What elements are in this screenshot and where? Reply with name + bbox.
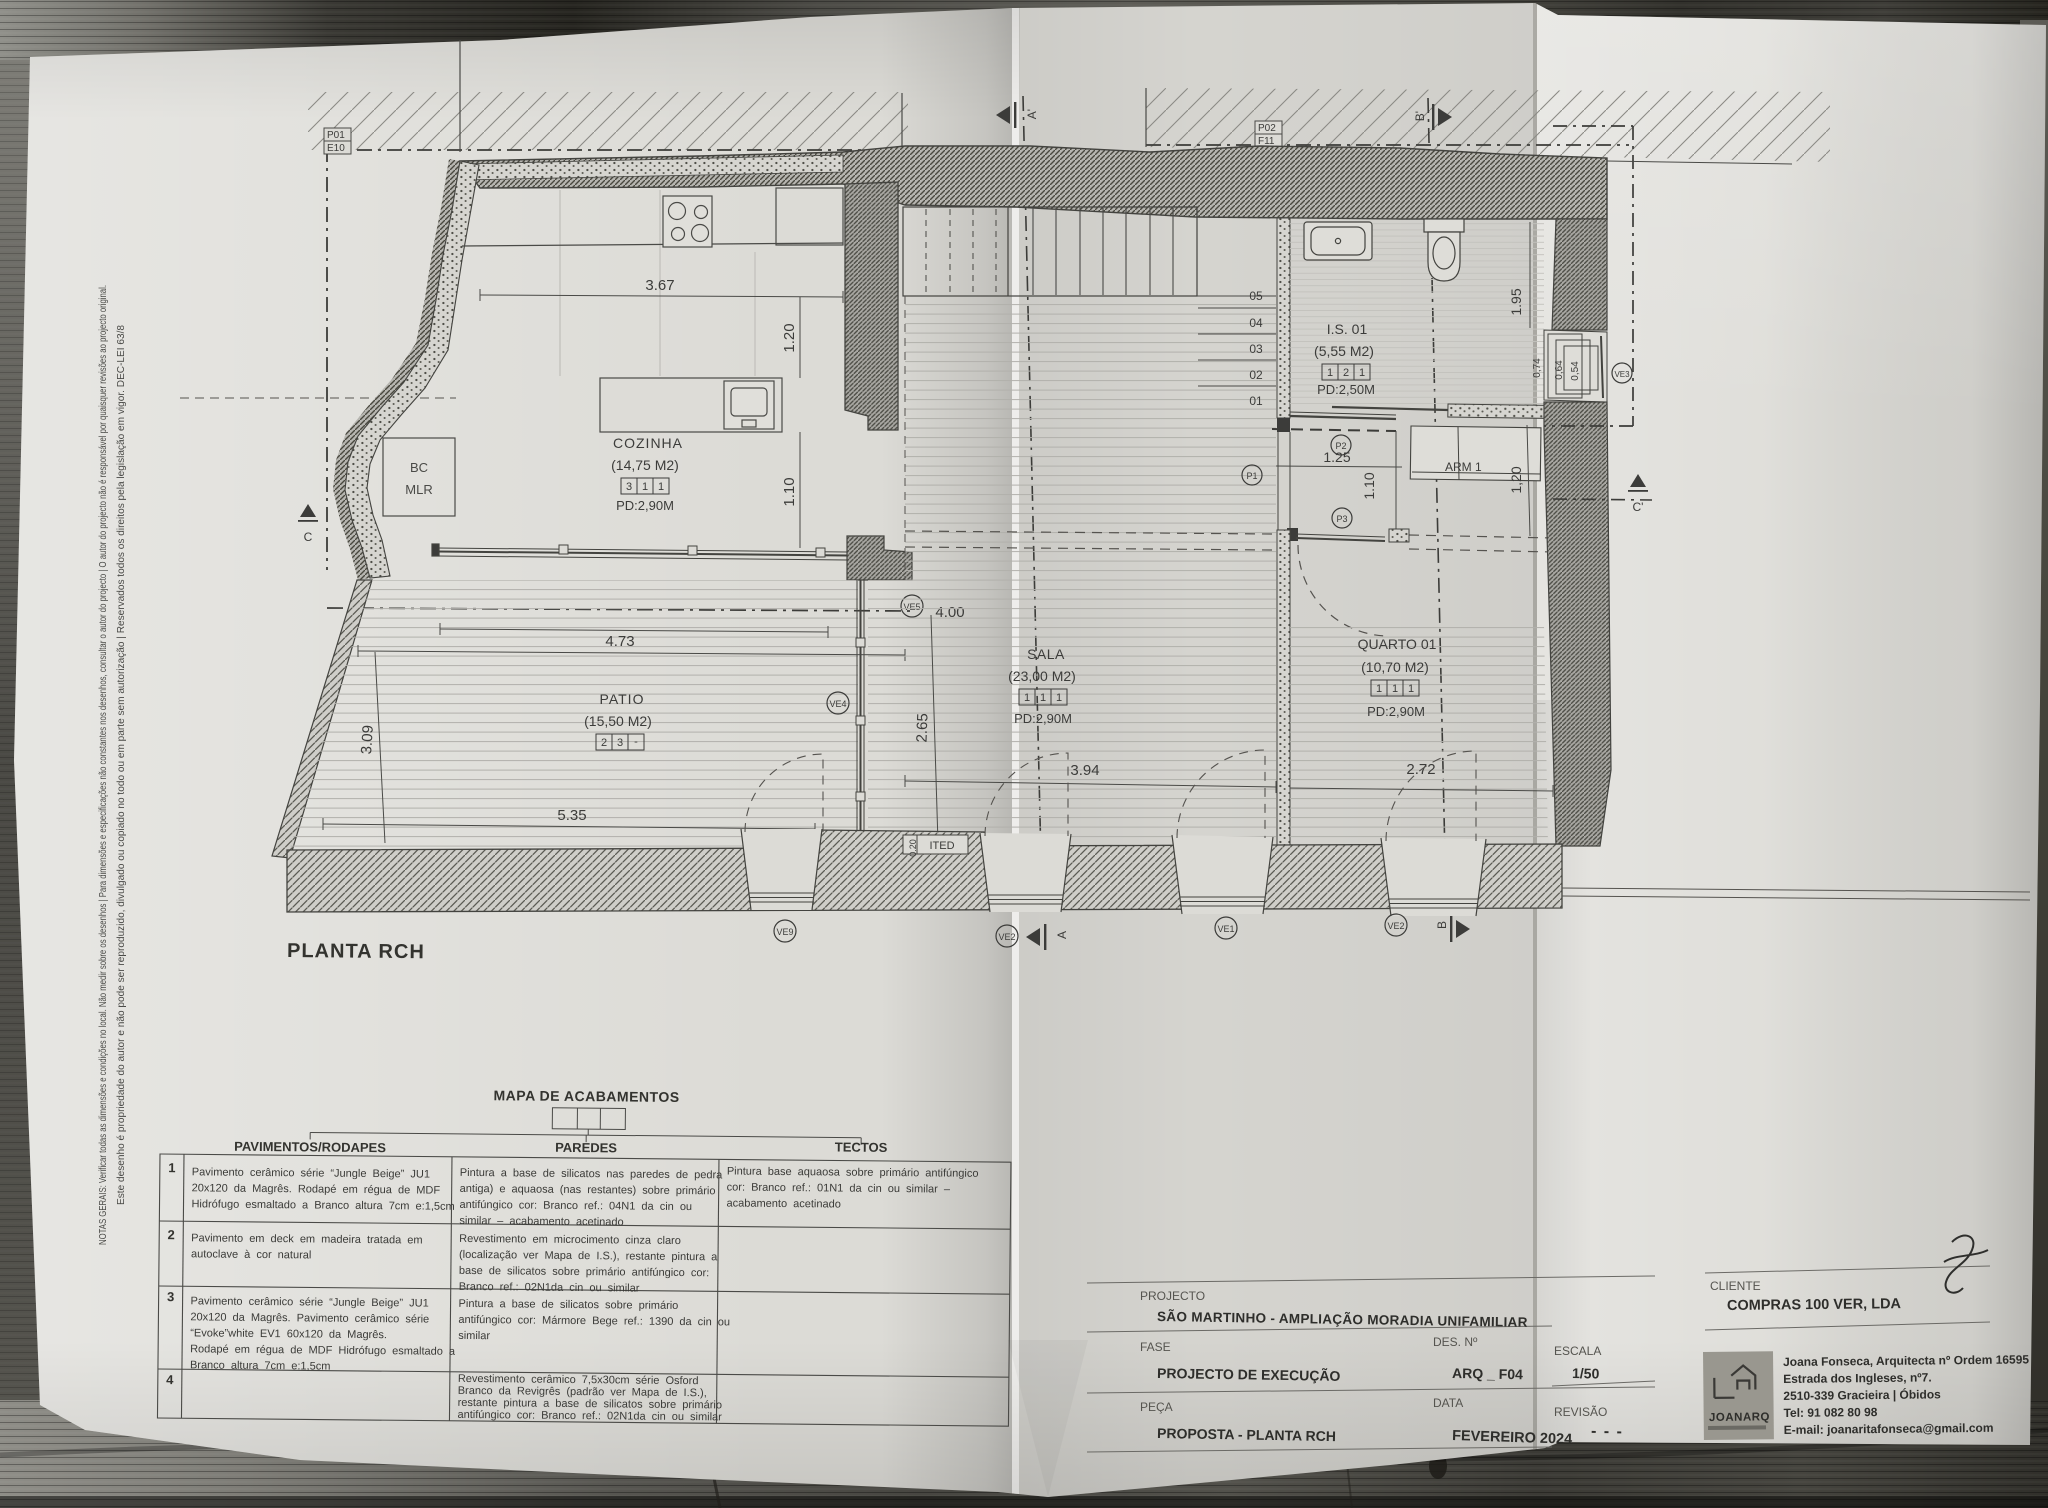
svg-text:Pintura base aquaosa sobre pri: Pintura base aquaosa sobre primário anti…: [727, 1165, 979, 1179]
svg-text:1.10: 1.10: [1361, 472, 1377, 499]
svg-text:MLR: MLR: [405, 482, 432, 497]
svg-text:Pavimento cerâmico série “Jung: Pavimento cerâmico série “Jungle Beige” …: [191, 1295, 429, 1309]
svg-text:Pintura a base de silicatos so: Pintura a base de silicatos sobre primár…: [459, 1298, 679, 1312]
svg-text:01: 01: [1249, 394, 1263, 408]
svg-text:REVISÃO: REVISÃO: [1554, 1405, 1607, 1419]
svg-text:2: 2: [601, 737, 607, 749]
svg-text:base de silicatos sobre primár: base de silicatos sobre primário antifún…: [459, 1265, 709, 1279]
svg-text:1: 1: [1359, 367, 1365, 379]
svg-text:- - -: - - -: [1591, 1423, 1624, 1441]
svg-text:PD:2,50M: PD:2,50M: [1317, 382, 1375, 397]
svg-text:1.95: 1.95: [1508, 288, 1524, 315]
svg-text:(5,55 M2): (5,55 M2): [1314, 343, 1374, 359]
svg-text:PATIO: PATIO: [600, 691, 645, 707]
svg-text:PAVIMENTOS/RODAPES: PAVIMENTOS/RODAPES: [234, 1139, 386, 1155]
svg-text:B: B: [1435, 921, 1449, 929]
svg-text:BC: BC: [410, 460, 428, 475]
svg-text:03: 03: [1249, 342, 1263, 356]
svg-text:PLANTA RCH: PLANTA RCH: [287, 940, 425, 963]
svg-text:A': A': [1025, 109, 1039, 119]
svg-text:Rodapé em régua de MDF Hidrófu: Rodapé em régua de MDF Hidrófugo esmalta…: [190, 1343, 456, 1358]
svg-text:1: 1: [168, 1160, 175, 1175]
svg-text:A: A: [1055, 931, 1069, 939]
svg-text:autoclave à cor natural: autoclave à cor natural: [191, 1248, 311, 1261]
svg-text:DATA: DATA: [1433, 1396, 1463, 1410]
svg-text:similar: similar: [458, 1330, 490, 1342]
svg-text:0,64: 0,64: [1554, 360, 1565, 380]
svg-text:MAPA DE ACABAMENTOS: MAPA DE ACABAMENTOS: [493, 1087, 679, 1105]
svg-text:“Evoke”white EV1 60x120 da Mag: “Evoke”white EV1 60x120 da Magrês.: [190, 1327, 387, 1341]
svg-text:P3: P3: [1336, 514, 1347, 524]
svg-text:E10: E10: [327, 143, 345, 154]
svg-text:Joana Fonseca, Arquitecta nº O: Joana Fonseca, Arquitecta nº Ordem 16595: [1783, 1352, 2029, 1369]
svg-text:1: 1: [1392, 683, 1398, 695]
svg-text:TECTOS: TECTOS: [835, 1139, 888, 1155]
svg-text:cor: Branco ref.: 01N1 da cin: cor: Branco ref.: 01N1 da cin ou similar…: [727, 1181, 951, 1195]
svg-text:C: C: [304, 530, 313, 544]
svg-text:ITED: ITED: [929, 840, 954, 852]
svg-text:4.73: 4.73: [605, 633, 634, 650]
svg-text:1,20: 1,20: [1508, 466, 1524, 493]
svg-text:2: 2: [1343, 367, 1349, 379]
svg-text:Branco ref.: 02N1da cin ou sim: Branco ref.: 02N1da cin ou similar: [459, 1281, 640, 1295]
svg-text:2510-339 Gracieira | Óbidos: 2510-339 Gracieira | Óbidos: [1783, 1386, 1941, 1403]
svg-text:PROJECTO: PROJECTO: [1140, 1289, 1205, 1303]
svg-text:antifúngico cor: Branco ref.:: antifúngico cor: Branco ref.: 02N1da cin…: [457, 1409, 722, 1424]
svg-text:FASE: FASE: [1140, 1340, 1171, 1354]
svg-text:antiga) e aquaosa (nas restant: antiga) e aquaosa (nas restantes) sobre …: [460, 1183, 716, 1197]
svg-text:Revestimento em microcimento c: Revestimento em microcimento cinza claro: [459, 1233, 681, 1247]
svg-text:B': B': [1413, 111, 1427, 121]
svg-text:NOTAS GERAIS: Verificar todas: NOTAS GERAIS: Verificar todas as dimensõ…: [97, 285, 109, 1245]
svg-text:Estrada dos Ingleses, nº7.: Estrada dos Ingleses, nº7.: [1783, 1370, 1932, 1386]
svg-text:acabamento acetinado: acabamento acetinado: [726, 1197, 840, 1210]
svg-text:04: 04: [1249, 316, 1263, 330]
svg-text:CLIENTE: CLIENTE: [1710, 1279, 1761, 1293]
svg-text:C': C': [1633, 500, 1644, 514]
svg-text:1/50: 1/50: [1572, 1365, 1600, 1381]
svg-text:3: 3: [617, 737, 623, 749]
svg-text:2: 2: [168, 1227, 175, 1242]
svg-text:SALA: SALA: [1027, 646, 1065, 662]
svg-text:5.35: 5.35: [557, 807, 586, 824]
svg-text:PD:2,90M: PD:2,90M: [616, 498, 674, 513]
svg-text:ESCALA: ESCALA: [1554, 1344, 1601, 1358]
svg-text:VE1: VE1: [1217, 924, 1234, 934]
svg-text:VE9: VE9: [776, 927, 793, 937]
svg-text:PROPOSTA - PLANTA RCH: PROPOSTA - PLANTA RCH: [1157, 1425, 1336, 1444]
svg-text:3.67: 3.67: [645, 277, 674, 294]
svg-text:Hidrófugo esmaltado a Branco a: Hidrófugo esmaltado a Branco altura 7cm …: [191, 1198, 454, 1213]
svg-text:PD:2,90M: PD:2,90M: [1367, 704, 1425, 719]
svg-text:PD:2,90M: PD:2,90M: [1014, 711, 1072, 726]
svg-text:PROJECTO DE EXECUÇÃO: PROJECTO DE EXECUÇÃO: [1157, 1364, 1341, 1384]
svg-text:P02: P02: [1258, 123, 1276, 134]
svg-text:DES. Nº: DES. Nº: [1433, 1335, 1478, 1349]
svg-text:3: 3: [626, 481, 632, 493]
svg-text:1.25: 1.25: [1323, 449, 1350, 465]
svg-text:QUARTO 01: QUARTO 01: [1358, 636, 1437, 652]
svg-text:3.94: 3.94: [1070, 762, 1099, 779]
svg-text:1: 1: [1327, 367, 1333, 379]
svg-text:1: 1: [1024, 692, 1030, 704]
svg-text:(localização ver Mapa de I.S.): (localização ver Mapa de I.S.), restante…: [459, 1249, 718, 1263]
svg-text:antifúngico cor: Branco ref.:: antifúngico cor: Branco ref.: 04N1 da ci…: [459, 1199, 692, 1213]
svg-text:ARM 1: ARM 1: [1445, 460, 1482, 474]
svg-text:0,54: 0,54: [1570, 361, 1581, 381]
svg-text:(15,50 M2): (15,50 M2): [584, 713, 652, 729]
svg-text:COZINHA: COZINHA: [613, 435, 683, 451]
svg-text:VE2: VE2: [998, 932, 1015, 942]
svg-text:4: 4: [166, 1372, 174, 1387]
svg-text:E-mail: joanaritafonseca@gmail: E-mail: joanaritafonseca@gmail.com: [1784, 1421, 1994, 1437]
svg-text:VE2: VE2: [1387, 921, 1404, 931]
svg-text:1.20: 1.20: [781, 323, 798, 352]
svg-text:P01: P01: [327, 130, 345, 141]
svg-text:Pintura a base de silicatos na: Pintura a base de silicatos nas paredes …: [460, 1167, 723, 1182]
svg-text:similar – acabamento acetinado: similar – acabamento acetinado: [459, 1215, 623, 1229]
svg-text:JOANARQ: JOANARQ: [1709, 1411, 1770, 1424]
svg-text:1: 1: [1408, 683, 1414, 695]
svg-text:COMPRAS 100 VER, LDA: COMPRAS 100 VER, LDA: [1727, 1296, 1902, 1314]
svg-text:3: 3: [167, 1289, 174, 1304]
svg-text:Pavimento cerâmico série “Jung: Pavimento cerâmico série “Jungle Beige” …: [192, 1166, 430, 1180]
svg-text:ARQ _ F04: ARQ _ F04: [1452, 1365, 1523, 1382]
svg-text:Este desenho é propriedade do: Este desenho é propriedade do autor e nã…: [115, 325, 127, 1205]
svg-text:0.20: 0.20: [908, 839, 918, 857]
svg-text:1: 1: [658, 481, 664, 493]
svg-text:1: 1: [1040, 692, 1046, 704]
svg-text:1: 1: [1056, 692, 1062, 704]
svg-text:Pavimento em deck em madeira t: Pavimento em deck em madeira tratada em: [191, 1232, 422, 1246]
svg-text:PAREDES: PAREDES: [555, 1140, 617, 1156]
svg-text:VE4: VE4: [829, 699, 846, 709]
svg-text:PEÇA: PEÇA: [1140, 1400, 1173, 1414]
svg-text:20x120 da Magrês. Pavimento ce: 20x120 da Magrês. Pavimento cerâmico sér…: [190, 1311, 429, 1325]
svg-text:P1: P1: [1246, 471, 1257, 481]
svg-text:(14,75 M2): (14,75 M2): [611, 457, 679, 473]
svg-text:3.09: 3.09: [358, 725, 377, 755]
svg-text:Tel: 91 082 80 98: Tel: 91 082 80 98: [1783, 1405, 1877, 1420]
svg-text:VE3: VE3: [1614, 370, 1630, 379]
svg-text:I.S. 01: I.S. 01: [1327, 321, 1368, 337]
svg-text:Branco altura 7cm e:1,5cm: Branco altura 7cm e:1,5cm: [190, 1359, 331, 1372]
svg-text:1.10: 1.10: [781, 477, 798, 506]
svg-text:-: -: [634, 736, 638, 748]
svg-text:(23,00 M2): (23,00 M2): [1008, 668, 1076, 684]
svg-text:2.65: 2.65: [913, 713, 931, 743]
svg-text:0,74: 0,74: [1532, 358, 1543, 378]
svg-text:05: 05: [1249, 289, 1263, 303]
svg-text:02: 02: [1249, 368, 1263, 382]
svg-text:1: 1: [642, 481, 648, 493]
svg-text:1: 1: [1376, 683, 1382, 695]
svg-text:(10,70 M2): (10,70 M2): [1361, 659, 1429, 675]
svg-text:20x120 da Magrês. Rodapé em ré: 20x120 da Magrês. Rodapé em régua de MDF: [192, 1182, 441, 1196]
